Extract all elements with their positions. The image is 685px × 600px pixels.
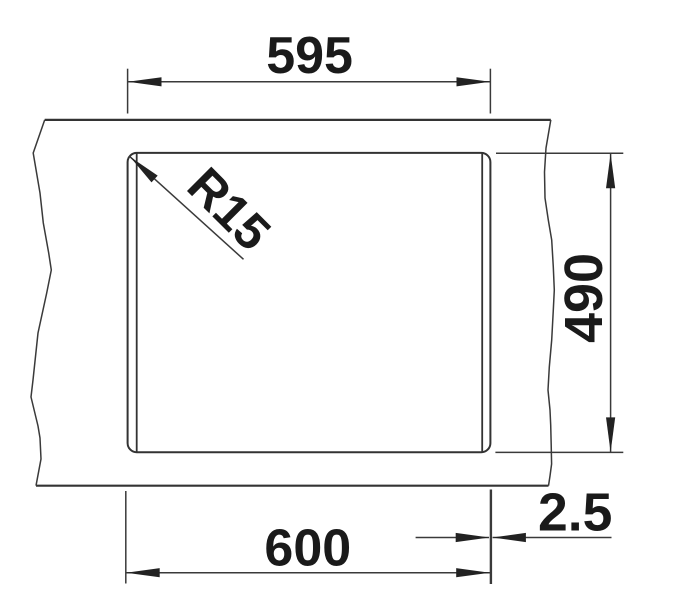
svg-text:2.5: 2.5 [538,484,612,543]
svg-text:600: 600 [264,520,351,578]
svg-text:490: 490 [554,253,614,343]
svg-text:595: 595 [266,27,353,85]
